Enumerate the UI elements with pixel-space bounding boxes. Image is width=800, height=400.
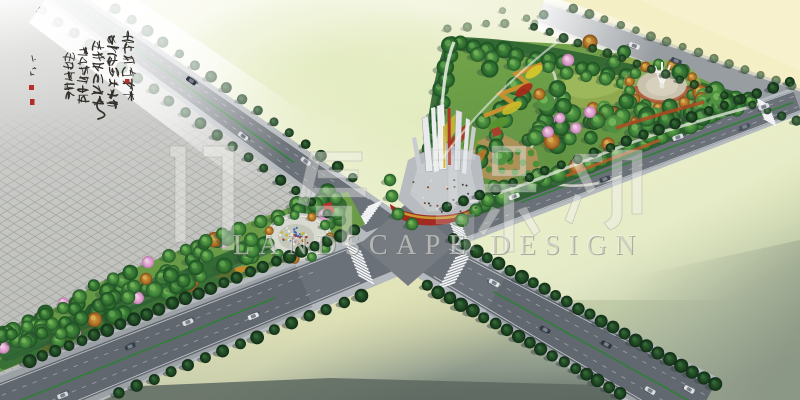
- svg-text:LANDSCAPE DESIGN: LANDSCAPE DESIGN: [233, 230, 644, 261]
